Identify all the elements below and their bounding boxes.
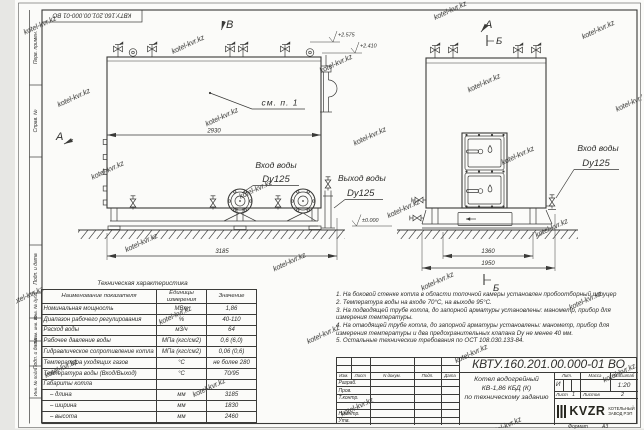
view-label-b-top: В [226,19,233,31]
view-label-a-left: А [55,131,63,143]
elev-zero: ±0.000 [362,218,378,224]
cell-name: Габариты котла [42,379,157,390]
cell-name: – высота [42,411,157,422]
grid-line [337,417,459,418]
table-row: – ширинамм1830 [42,401,257,412]
logo-subtext: КОТЕЛЬНЫЙ ЗАВОД РЭП [608,406,634,416]
cell-unit: м3/ч [157,325,207,336]
cell-value: 1,86 [207,304,257,315]
row-label-prov: Пров. [339,388,352,394]
grid-line [571,379,572,392]
side-label-podp-data-1: Подп. и дата [33,253,39,285]
section-label-b: Б [496,36,502,47]
table-row: Номинальная мощностьМВт1,86 [42,304,257,315]
cell-value: не более 280 [207,357,257,368]
tech-characteristics: Техническая характеристика Наименование … [41,280,244,423]
cell-value: 0,06 (0,6) [207,347,257,358]
grid-line [337,365,459,366]
col-header-podp: Подп. [414,373,441,378]
cell-value: 64 [207,325,257,336]
side-label-inv-podl: Инв. № подл. [33,368,38,397]
cell-unit: мм [157,401,207,412]
table-row: Гидравлическое сопротивление котлаМПа (к… [42,347,257,358]
row-label-nkontr: Н.контр. [339,411,360,417]
cell-value: 70/95 [207,368,257,379]
cell-unit: мм [157,390,207,401]
drawing-sheet: { "meta": { "background": "#e7e7e4", "sh… [0,0,644,430]
see-note-text: см. п. 1 [262,98,299,108]
format-value: А3 [602,424,608,430]
side-label-podp-data-2: Подп. и дата [33,338,39,370]
grid-line [441,358,442,425]
row-label-tkontr: Т.контр. [339,395,359,401]
cell-unit: °С [157,368,207,379]
tech-header-unit: Единицы измерения [157,290,207,304]
note-item: 2. Температура воды на входе 70°С, на вы… [336,299,636,306]
lit-value: И [554,381,563,388]
ground-hatch [78,230,578,239]
cell-unit: МПа (кгс/см2) [157,336,207,347]
table-row: – длинамм3185 [42,390,257,401]
sheets-label: Листов [583,392,600,397]
note-item: 4. На отводящей трубе котла, до запорной… [336,322,636,337]
cell-unit: °С [157,357,207,368]
doc-number: КВТУ.160.201.00.000-01 ВО [459,358,638,372]
cell-name: Рабочее давление воды [42,336,157,347]
technical-notes: 1. На боковой стенке котла в области топ… [336,291,636,345]
col-header-data: Дата [441,373,459,378]
grid-line [414,358,415,425]
inlet-dn: Dy125 [582,158,610,169]
inlet-text: Вход воды [255,160,297,170]
cell-name: Диапазон рабочего регулирования [42,314,157,325]
product-title-line1: Котел водогрейный [460,376,553,383]
logo-sub-line2: ЗАВОД РЭП [608,411,634,416]
tech-table-title: Техническая характеристика [41,280,244,287]
side-label-sprav: Справ. № [33,109,39,132]
table-row: Диапазон рабочего регулирования%40-110 [42,314,257,325]
grid-line [554,379,638,380]
cell-unit [157,379,207,390]
elev-2575: +2.575 [338,33,356,39]
row-label-razrab: Разраб. [339,380,357,386]
table-row: Температура воды (Вход/Выход)°С70/95 [42,368,257,379]
cell-value: 3185 [207,390,257,401]
cell-name: Расход воды [42,325,157,336]
grid-line [370,358,371,425]
table-row: Габариты котла [42,379,257,390]
outlet-text: Выход воды [338,173,387,183]
tech-header-value: Значение [207,290,257,304]
cell-name: – ширина [42,401,157,412]
grid-line [337,386,459,387]
logo-bars-icon [557,405,566,418]
row-label-utv: Утв. [339,418,350,424]
table-row: Температура уходящих газов°Сне более 280 [42,357,257,368]
inlet-text: Вход воды [577,143,619,153]
table-row: Рабочее давление водыМПа (кгс/см2)0,6 (6… [42,336,257,347]
tech-header-name: Наименование показателя [42,290,157,304]
view-label-a-right: А [484,19,492,31]
dim-1360: 1360 [481,249,495,255]
cell-value: 40-110 [207,314,257,325]
mass-header: Масса [580,373,610,378]
cell-value: 1830 [207,401,257,412]
cell-name: Температура уходящих газов [42,357,157,368]
table-row: – высотамм2460 [42,411,257,422]
table-row: Расход водым3/ч64 [42,325,257,336]
col-header-ndokum: N докум. [370,373,414,378]
col-header-izm: Изм. [337,373,351,378]
dim-2930: 2930 [206,129,221,135]
format-label: Формат [568,424,588,430]
side-label-perv-primen: Перв. примен. [33,31,39,64]
cell-name: Гидравлическое сопротивление котла [42,347,157,358]
note-item: 1. На боковой стенке котла в области топ… [336,291,636,298]
outlet-dn: Dy125 [347,188,375,199]
tech-table: Наименование показателя Единицы измерени… [41,289,257,423]
title-block: КВТУ.160.201.00.000-01 ВО Изм. Лист N до… [336,357,637,424]
cell-name: Номинальная мощность [42,304,157,315]
dim-3185: 3185 [215,249,229,255]
logo-text: KVZR [569,404,605,418]
scale-header: Масштаб [610,373,638,378]
elev-2410: +2.410 [360,44,377,50]
grid-line [337,402,459,403]
cell-name: – длина [42,390,157,401]
scale-value: 1:20 [610,382,638,389]
dim-1950: 1950 [481,261,495,267]
product-title-line3: по техническому заданию [460,394,553,401]
cell-unit: МПа (кгс/см2) [157,347,207,358]
inlet-dn: Dy125 [262,174,290,185]
note-item: 5. Остальные технические требования по О… [336,337,636,344]
note-item: 3. На подводящей трубе котла, до запорно… [336,307,636,322]
cell-unit: мм [157,411,207,422]
manufacturer-logo: KVZR КОТЕЛЬНЫЙ ЗАВОД РЭП [554,398,638,425]
cell-unit: МВт [157,304,207,315]
sheet-label: Лист [556,392,568,397]
top-stamp-number: КВТУ.160.201.00.000-01 ВО [52,12,131,19]
format-note: Формат А3 [552,424,638,430]
cell-value: 0,6 (6,0) [207,336,257,347]
col-header-list: Лист [351,373,371,378]
cell-unit: % [157,314,207,325]
cell-value [207,379,257,390]
sheets-value: 2 [621,392,624,398]
cell-name: Температура воды (Вход/Выход) [42,368,157,379]
cell-value: 2460 [207,411,257,422]
grid-line [563,379,564,392]
sheet-value: 1 [572,392,575,398]
product-title-line2: КВ-1,86 КБД (К) [460,385,553,392]
lit-header: Лит. [554,373,580,378]
